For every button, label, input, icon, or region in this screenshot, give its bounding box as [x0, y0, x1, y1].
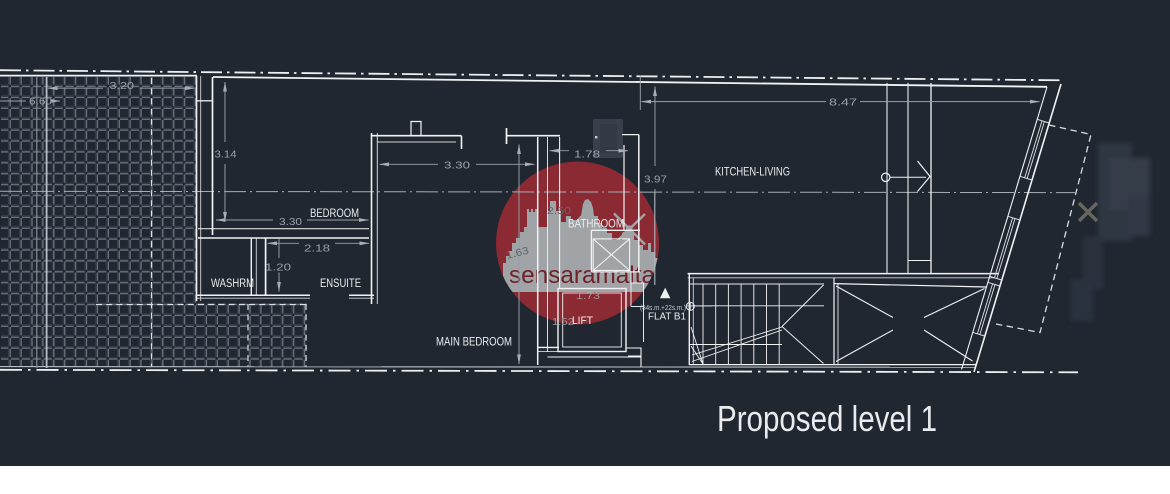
svg-text:KITCHEN-LIVING: KITCHEN-LIVING: [715, 167, 790, 179]
svg-text:WASHRM: WASHRM: [211, 278, 254, 290]
svg-text:(84s.m.+22s.m.): (84s.m.+22s.m.): [640, 305, 686, 312]
svg-text:2.50: 2.50: [547, 205, 571, 217]
svg-text:1.73: 1.73: [576, 291, 601, 302]
svg-text:LIFT: LIFT: [572, 315, 593, 327]
svg-text:1.20: 1.20: [265, 262, 291, 274]
svg-text:2.18: 2.18: [304, 243, 330, 255]
svg-text:3.30: 3.30: [444, 160, 470, 172]
svg-text:ENSUITE: ENSUITE: [320, 278, 361, 290]
svg-text:MAIN BEDROOM: MAIN BEDROOM: [436, 337, 512, 349]
svg-text:3.30: 3.30: [279, 216, 302, 228]
svg-text:1.52: 1.52: [552, 316, 574, 328]
svg-text:3.97: 3.97: [644, 174, 667, 186]
svg-text:6.60: 6.60: [29, 96, 52, 108]
svg-text:BEDROOM: BEDROOM: [310, 208, 359, 220]
svg-text:Proposed level 1: Proposed level 1: [717, 398, 937, 439]
svg-text:1.78: 1.78: [574, 149, 600, 161]
svg-text:3.20: 3.20: [110, 80, 135, 92]
svg-text:3.14: 3.14: [215, 149, 237, 161]
svg-text:FLAT B1: FLAT B1: [648, 312, 686, 323]
svg-text:8.47: 8.47: [829, 97, 857, 109]
svg-text:BATHROOM: BATHROOM: [568, 219, 624, 231]
